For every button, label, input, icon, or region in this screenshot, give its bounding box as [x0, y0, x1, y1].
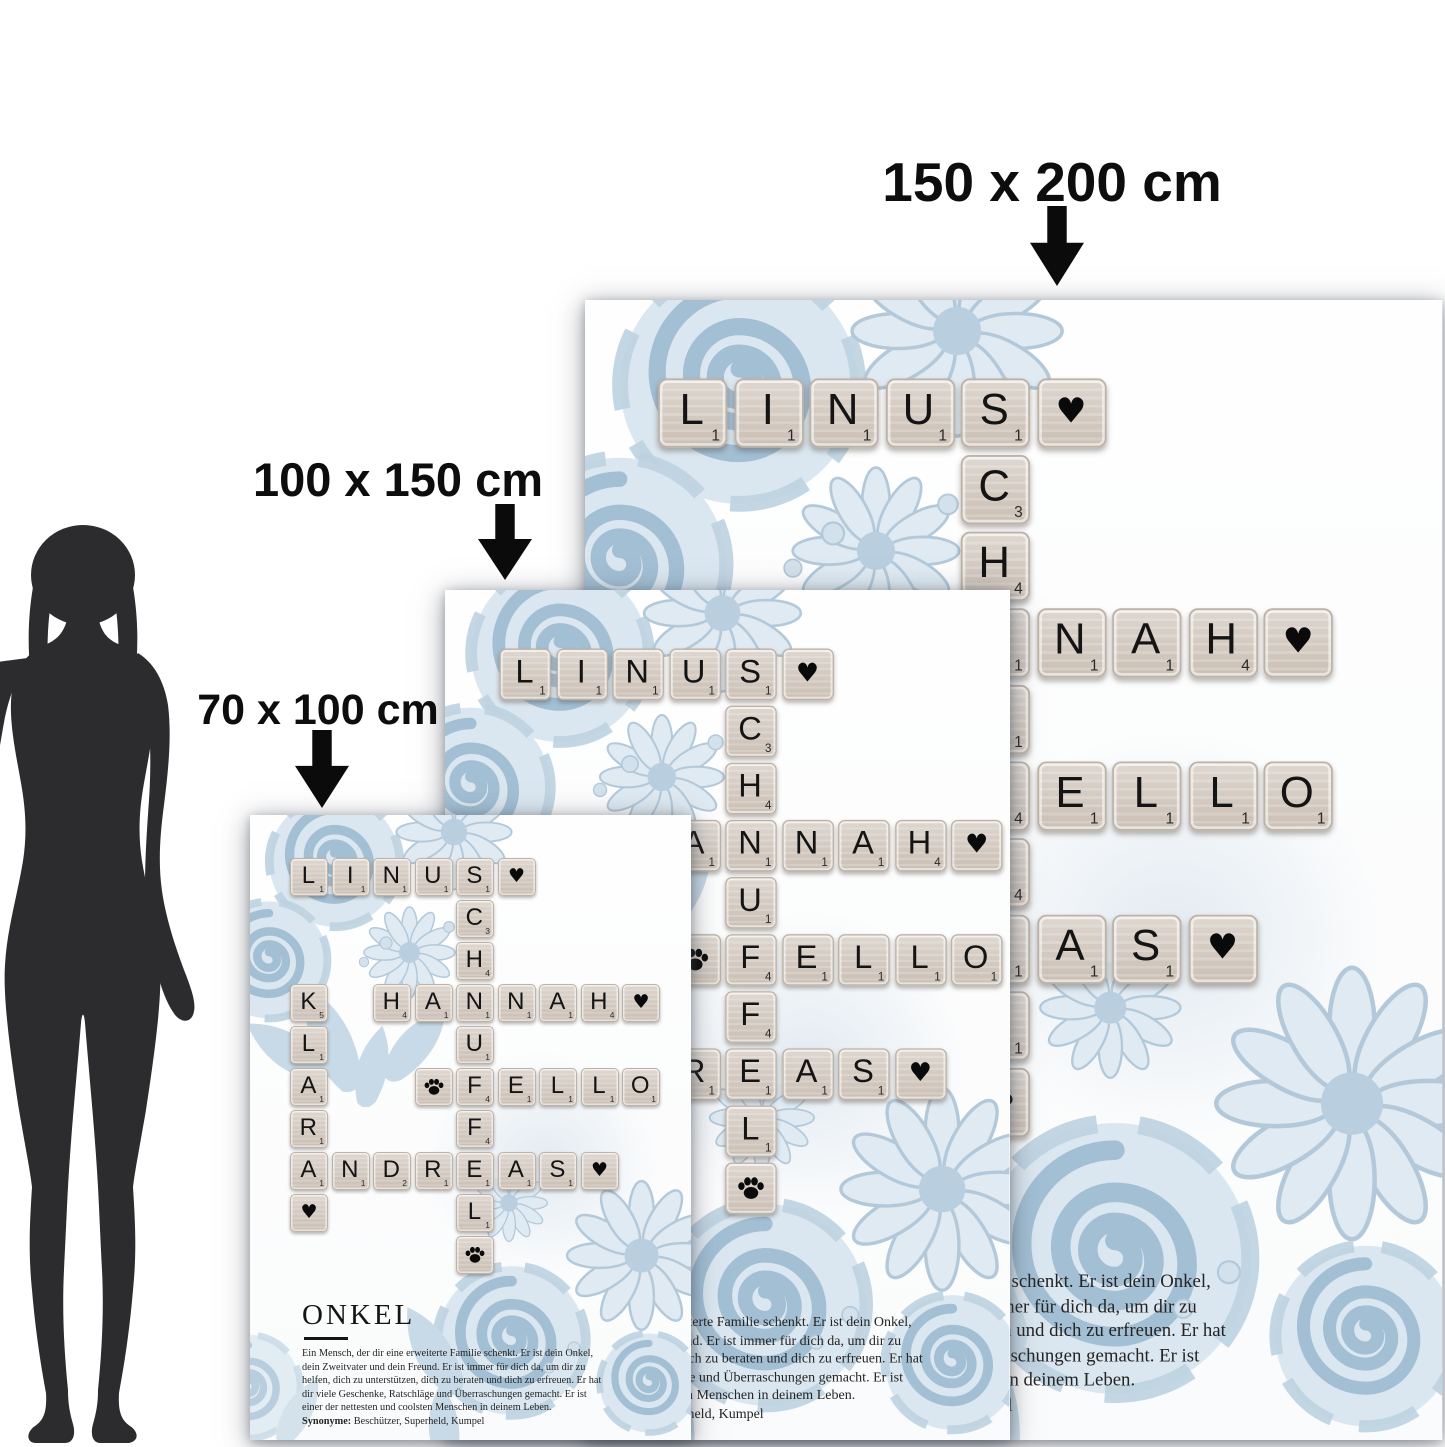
letter-tile-N: N1	[612, 648, 664, 700]
letter-tile-R: R1	[415, 1152, 453, 1190]
letter-tile-O: O1	[951, 934, 1003, 986]
letter-tile-U: U1	[415, 858, 453, 896]
letter-tile-N: N1	[373, 858, 411, 896]
letter-tile-A: A1	[1112, 608, 1181, 677]
letter-tile-U: U1	[725, 877, 777, 929]
letter-tile-D: D2	[373, 1152, 411, 1190]
letter-tile-A: A1	[498, 1152, 536, 1190]
poster-heading: ONKEL	[302, 1299, 660, 1332]
letter-tile-C: C3	[725, 706, 777, 758]
letter-tile-S: S1	[1112, 915, 1181, 984]
letter-tile-E: E1	[456, 1152, 494, 1190]
synonyms-line: Synonyme: Beschützer, Superheld, Kumpel	[302, 1416, 660, 1427]
letter-tile-N: N1	[809, 378, 878, 447]
letter-tile-S: S1	[961, 378, 1030, 447]
letter-tile-H: H4	[456, 942, 494, 980]
letter-tile-F: F4	[725, 934, 777, 986]
letter-tile-R: R1	[290, 1110, 328, 1148]
letter-tile-H: H4	[894, 820, 946, 872]
letter-tile-A: A1	[838, 820, 890, 872]
letter-tile-N: N1	[456, 984, 494, 1022]
size-comparison-banner: Größenvergleich	[0, 0, 1445, 152]
letter-tile-A: A1	[415, 984, 453, 1022]
letter-tile-S: S1	[539, 1152, 577, 1190]
down-arrow-70x100	[295, 730, 349, 808]
definition-block: ONKEL Ein Mensch, der dir eine erweitert…	[302, 1299, 660, 1427]
heart-tile: ♥	[1188, 915, 1257, 984]
ruler-icon	[442, 16, 512, 78]
letter-tile-C: C3	[456, 900, 494, 938]
letter-tile-U: U1	[669, 648, 721, 700]
letter-tile-A: A1	[290, 1152, 328, 1190]
letter-tile-N: N1	[332, 1152, 370, 1190]
poster-70x100: L1I1N1U1S1♥C3H4K5H4A1N1N1A1H4♥L1U1A1F4E1…	[250, 815, 691, 1440]
letter-tile-I: I1	[556, 648, 608, 700]
letter-tile-S: S1	[725, 648, 777, 700]
letter-tile-N: N1	[725, 820, 777, 872]
paw-tile	[456, 1236, 494, 1274]
person-silhouette	[0, 515, 228, 1447]
down-arrow-100x150	[478, 504, 532, 580]
letter-tile-K: K5	[290, 984, 328, 1022]
letter-tile-L: L1	[539, 1068, 577, 1106]
letter-tile-H: H4	[1188, 608, 1257, 677]
letter-tile-L: L1	[290, 858, 328, 896]
letter-tile-N: N1	[1036, 608, 1105, 677]
heart-tile: ♥	[1264, 608, 1333, 677]
letter-tile-I: I1	[734, 378, 803, 447]
heart-tile: ♥	[1036, 378, 1105, 447]
letter-tile-F: F4	[456, 1068, 494, 1106]
letter-tile-I: I1	[332, 858, 370, 896]
heart-tile: ♥	[782, 648, 834, 700]
letter-tile-H: H4	[725, 763, 777, 815]
size-label-70x100: 70 x 100 cm	[197, 686, 438, 735]
letter-tile-U: U1	[885, 378, 954, 447]
heart-tile: ♥	[894, 1048, 946, 1100]
banner-title: Größenvergleich	[534, 10, 1002, 71]
letter-tile-F: F4	[456, 1110, 494, 1148]
letter-tile-H: H4	[373, 984, 411, 1022]
letter-tile-E: E1	[725, 1048, 777, 1100]
paw-tile	[415, 1068, 453, 1106]
letter-tile-E: E1	[1036, 761, 1105, 830]
letter-tile-L: L1	[456, 1194, 494, 1232]
heart-tile: ♥	[951, 820, 1003, 872]
letter-tile-A: A1	[290, 1068, 328, 1106]
letter-tile-L: L1	[725, 1105, 777, 1157]
letter-tile-L: L1	[1188, 761, 1257, 830]
letter-tile-L: L1	[838, 934, 890, 986]
letter-tile-L: L1	[581, 1068, 619, 1106]
heart-tile: ♥	[498, 858, 536, 896]
letter-tile-L: L1	[290, 1026, 328, 1064]
letter-tile-L: L1	[658, 378, 727, 447]
letter-tile-N: N1	[782, 820, 834, 872]
letter-tile-L: L1	[499, 648, 551, 700]
size-label-100x150: 100 x 150 cm	[253, 452, 543, 507]
letter-tile-E: E1	[498, 1068, 536, 1106]
size-label-150x200: 150 x 200 cm	[882, 150, 1221, 214]
paw-tile	[725, 1163, 777, 1215]
letter-tile-E: E1	[782, 934, 834, 986]
letter-tile-N: N1	[498, 984, 536, 1022]
letter-tile-U: U1	[456, 1026, 494, 1064]
letter-tile-O: O1	[1264, 761, 1333, 830]
letter-tile-A: A1	[782, 1048, 834, 1100]
letter-tile-L: L1	[1112, 761, 1181, 830]
definition-text: Ein Mensch, der dir eine erweiterte Fami…	[302, 1347, 660, 1415]
letter-tile-A: A1	[1036, 915, 1105, 984]
down-arrow-150x200	[1030, 206, 1084, 286]
heading-rule	[304, 1337, 348, 1341]
letter-tile-A: A1	[539, 984, 577, 1022]
heart-tile: ♥	[290, 1194, 328, 1232]
letter-tile-S: S1	[456, 858, 494, 896]
letter-tile-C: C3	[961, 455, 1030, 524]
letter-tile-F: F4	[725, 991, 777, 1043]
letter-tile-S: S1	[838, 1048, 890, 1100]
letter-tile-L: L1	[894, 934, 946, 986]
letter-tile-O: O1	[622, 1068, 660, 1106]
heart-tile: ♥	[581, 1152, 619, 1190]
letter-tile-H: H4	[581, 984, 619, 1022]
heart-tile: ♥	[622, 984, 660, 1022]
